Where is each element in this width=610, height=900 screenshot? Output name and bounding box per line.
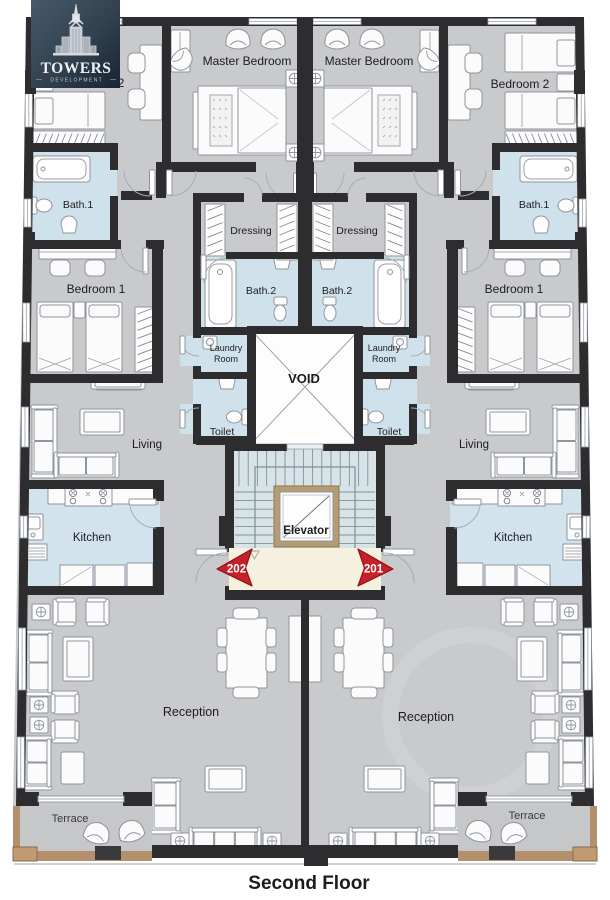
svg-text:Terrace: Terrace — [509, 810, 546, 822]
svg-text:Kitchen: Kitchen — [73, 532, 111, 544]
svg-text:Elevator: Elevator — [283, 525, 329, 537]
svg-text:VOID: VOID — [288, 371, 320, 386]
svg-text:Bath.2: Bath.2 — [322, 285, 353, 297]
svg-text:Bedroom 1: Bedroom 1 — [67, 282, 126, 296]
svg-text:202: 202 — [227, 564, 246, 576]
svg-text:Laundry: Laundry — [368, 343, 401, 353]
svg-text:Second Floor: Second Floor — [248, 873, 370, 894]
svg-text:Master Bedroom: Master Bedroom — [203, 54, 292, 68]
svg-text:Toilet: Toilet — [377, 426, 402, 438]
svg-text:Toilet: Toilet — [210, 426, 235, 438]
svg-text:Living: Living — [459, 439, 489, 451]
svg-text:201: 201 — [364, 564, 384, 576]
svg-text:Bedroom 2: Bedroom 2 — [491, 77, 550, 91]
svg-text:Bath.2: Bath.2 — [246, 285, 277, 297]
svg-text:Terrace: Terrace — [52, 813, 89, 825]
svg-text:Room: Room — [214, 354, 238, 364]
svg-text:Bath.1: Bath.1 — [519, 199, 550, 211]
svg-text:Dressing: Dressing — [230, 225, 272, 237]
svg-text:Kitchen: Kitchen — [494, 532, 532, 544]
svg-text:Dressing: Dressing — [336, 225, 378, 237]
svg-text:Living: Living — [132, 439, 162, 451]
svg-text:Laundry: Laundry — [210, 343, 243, 353]
svg-text:Room: Room — [372, 354, 396, 364]
svg-text:TOWERS: TOWERS — [41, 60, 112, 77]
svg-text:Bath.1: Bath.1 — [63, 199, 94, 211]
svg-text:Bedroom 1: Bedroom 1 — [485, 282, 544, 296]
svg-text:Master Bedroom: Master Bedroom — [325, 54, 414, 68]
svg-text:Reception: Reception — [398, 710, 454, 724]
svg-text:Reception: Reception — [163, 705, 219, 719]
svg-text:D E V E L O P M E N T: D E V E L O P M E N T — [50, 78, 101, 84]
